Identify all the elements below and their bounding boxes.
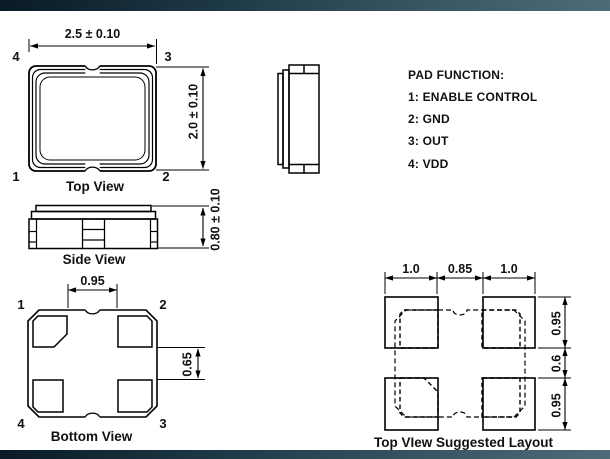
pad-function-line-1: 1: ENABLE CONTROL — [408, 90, 537, 104]
bottom-view-pad4-label: 4 — [14, 416, 28, 431]
bottom-view-pad1-label: 1 — [14, 297, 28, 312]
bottom-view-vertical-dimension: 0.65 — [181, 338, 196, 390]
side-view-drawing — [29, 206, 209, 249]
layout-side-dim-bottom: 0.95 — [550, 379, 565, 431]
layout-top-dim-right: 1.0 — [489, 262, 529, 276]
pad-function-line-3: 3: OUT — [408, 134, 449, 148]
end-view-drawing — [278, 65, 319, 173]
layout-top-dim-middle: 0.85 — [435, 262, 485, 276]
bottom-view-drawing — [28, 284, 205, 419]
top-view-pad1-label: 1 — [9, 169, 23, 184]
side-view-height-dimension: 0.80 ± 0.10 — [209, 174, 224, 266]
suggested-layout-drawing — [385, 272, 571, 430]
bottom-view-pad2-label: 2 — [156, 297, 170, 312]
top-view-pad3-label: 3 — [161, 49, 175, 64]
suggested-layout-caption: Top VIew Suggested Layout — [374, 435, 550, 450]
top-view-width-dimension: 2.5 ± 0.10 — [42, 27, 143, 41]
layout-top-dim-left: 1.0 — [391, 262, 431, 276]
top-view-pad2-label: 2 — [159, 169, 173, 184]
pad-function-line-2: 2: GND — [408, 112, 450, 126]
bottom-view-pad3-label: 3 — [156, 416, 170, 431]
top-view-drawing — [29, 39, 209, 173]
pad-function-title: PAD FUNCTION: — [408, 68, 504, 82]
bottom-view-horizontal-dimension: 0.95 — [62, 274, 123, 288]
top-view-caption: Top View — [45, 179, 145, 194]
top-view-pad4-label: 4 — [9, 49, 23, 64]
datasheet-drawing-page: 2.5 ± 0.10 4 3 1 2 2.0 ± 0.10 Top View 0… — [0, 0, 610, 459]
side-view-caption: Side View — [44, 252, 144, 267]
top-view-height-dimension: 2.0 ± 0.10 — [187, 66, 202, 158]
drawing-linework — [0, 0, 610, 459]
pad-function-line-4: 4: VDD — [408, 157, 449, 171]
bottom-view-caption: Bottom View — [41, 429, 142, 444]
